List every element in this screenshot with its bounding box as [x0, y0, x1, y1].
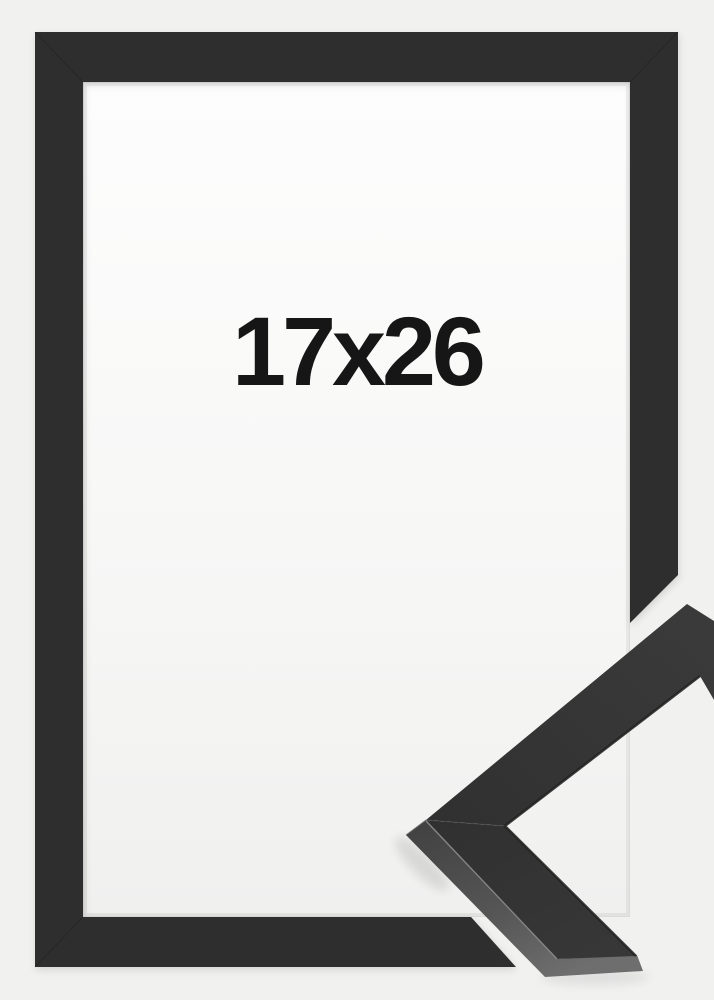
product-image: 17x26 [0, 0, 714, 1000]
frame-illustration [0, 0, 714, 1000]
size-label: 17x26 [0, 300, 714, 404]
